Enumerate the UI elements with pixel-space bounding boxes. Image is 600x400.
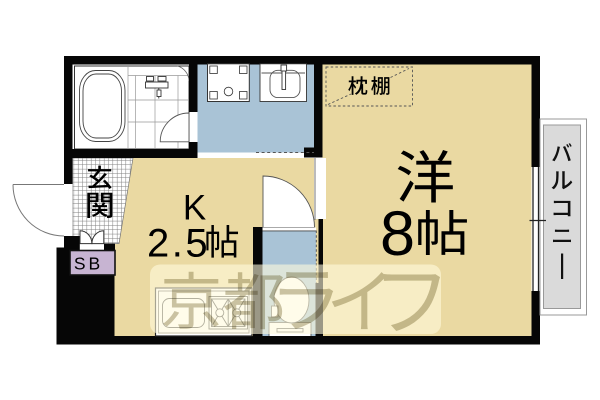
- svg-text:SB: SB: [74, 254, 103, 274]
- svg-text:8: 8: [380, 199, 415, 269]
- svg-text:2.5: 2.5: [147, 222, 210, 266]
